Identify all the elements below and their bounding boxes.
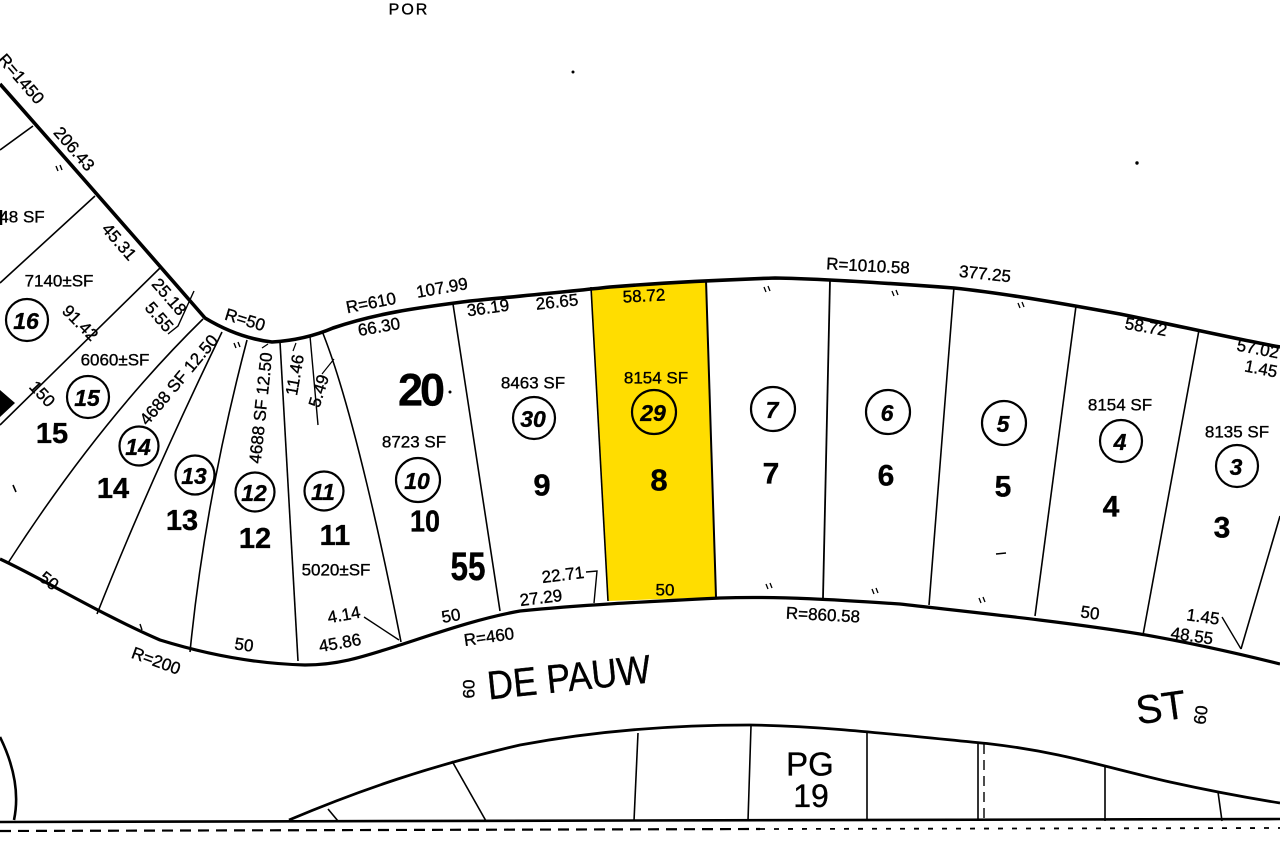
svg-text:50: 50 [1079, 602, 1100, 623]
svg-text:8154 SF: 8154 SF [1088, 396, 1152, 415]
svg-text:10: 10 [410, 504, 440, 539]
svg-text:5020±SF: 5020±SF [302, 561, 371, 580]
svg-text:10: 10 [404, 468, 430, 494]
svg-text:13: 13 [166, 505, 198, 537]
svg-text:7: 7 [763, 458, 780, 491]
svg-text:5: 5 [995, 471, 1012, 504]
svg-text:14: 14 [97, 473, 129, 505]
svg-text:50: 50 [440, 605, 462, 627]
svg-text:20: 20 [398, 365, 444, 416]
svg-text:60: 60 [1190, 704, 1211, 725]
svg-text:11: 11 [311, 479, 335, 505]
svg-text:R=860.58: R=860.58 [785, 604, 860, 627]
svg-text:29: 29 [639, 400, 666, 426]
svg-text:7: 7 [766, 397, 780, 423]
svg-text:3: 3 [1230, 454, 1243, 480]
svg-text:12: 12 [239, 523, 271, 555]
svg-text:8723 SF: 8723 SF [382, 433, 446, 452]
svg-text:6060±SF: 6060±SF [81, 351, 150, 370]
svg-text:15: 15 [36, 418, 68, 450]
svg-text:6: 6 [881, 400, 894, 426]
svg-text:8: 8 [650, 463, 667, 498]
svg-text:14: 14 [125, 434, 151, 460]
svg-text:55: 55 [451, 545, 486, 589]
svg-text:3: 3 [1214, 512, 1231, 545]
svg-text:16: 16 [13, 308, 39, 334]
svg-text:9: 9 [533, 468, 550, 503]
svg-text:19: 19 [793, 778, 829, 814]
svg-text:4: 4 [1113, 429, 1127, 455]
svg-text:30: 30 [520, 406, 546, 432]
svg-text:8463 SF: 8463 SF [501, 374, 565, 393]
svg-text:11: 11 [320, 520, 351, 552]
svg-text:4: 4 [1103, 491, 1120, 524]
svg-text:50: 50 [233, 634, 254, 655]
svg-text:60: 60 [460, 680, 479, 699]
svg-text:8154 SF: 8154 SF [624, 369, 688, 388]
svg-text:48 SF: 48 SF [0, 208, 45, 227]
svg-text:15: 15 [74, 385, 101, 411]
svg-text:7140±SF: 7140±SF [25, 272, 94, 291]
svg-text:5: 5 [997, 411, 1011, 437]
svg-text:POR: POR [389, 2, 430, 19]
svg-text:58.72: 58.72 [622, 285, 665, 306]
svg-text:6: 6 [878, 460, 895, 493]
svg-text:50: 50 [656, 581, 675, 600]
svg-text:ST: ST [1133, 683, 1189, 734]
svg-text:PG: PG [786, 746, 834, 783]
svg-text:13: 13 [181, 463, 207, 489]
svg-text:12: 12 [241, 480, 267, 506]
svg-text:8135 SF: 8135 SF [1205, 423, 1269, 442]
